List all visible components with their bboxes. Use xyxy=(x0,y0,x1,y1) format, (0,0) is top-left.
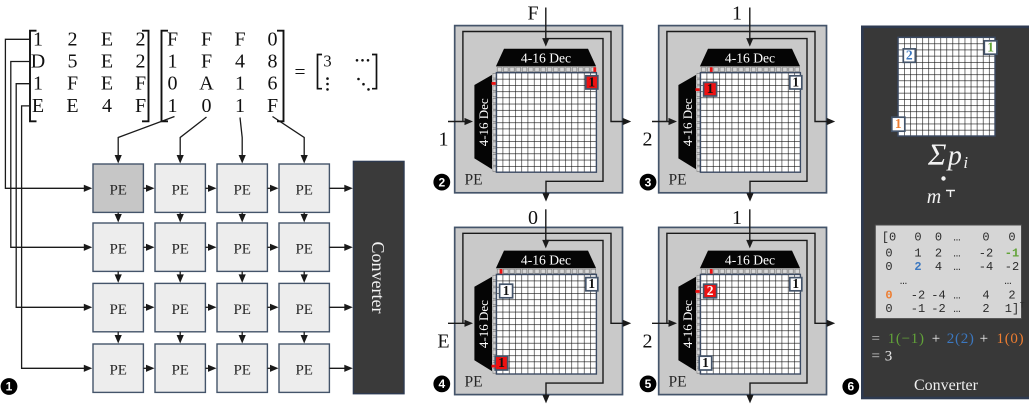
svg-text:F: F xyxy=(135,95,146,117)
svg-text:0: 0 xyxy=(885,260,892,274)
svg-text:Σpi: Σpi xyxy=(927,137,970,173)
svg-text:PE: PE xyxy=(171,242,189,258)
svg-text:PE: PE xyxy=(233,242,251,258)
svg-text:F: F xyxy=(267,95,278,117)
svg-text:E: E xyxy=(101,51,113,73)
svg-text:PE: PE xyxy=(295,363,313,379)
svg-text:4: 4 xyxy=(935,260,942,274)
svg-text:0: 0 xyxy=(885,247,892,261)
svg-text:2: 2 xyxy=(136,51,146,73)
svg-text:=: = xyxy=(872,349,880,365)
svg-text:PE: PE xyxy=(233,183,251,199)
svg-text:1: 1 xyxy=(588,74,595,89)
svg-text:4: 4 xyxy=(102,95,112,117)
svg-text:=: = xyxy=(872,331,880,347)
svg-text:F: F xyxy=(201,28,212,50)
svg-text:D: D xyxy=(31,51,45,73)
svg-text:…: … xyxy=(953,247,960,261)
svg-text:2: 2 xyxy=(982,302,989,316)
svg-text:PE: PE xyxy=(171,363,189,379)
svg-text:A: A xyxy=(199,73,214,95)
svg-text:…: … xyxy=(953,231,960,245)
svg-text:F: F xyxy=(234,28,245,50)
svg-text:Converter: Converter xyxy=(368,242,388,314)
svg-text:1: 1 xyxy=(168,95,178,117)
svg-text:…: … xyxy=(900,274,907,288)
svg-text:3: 3 xyxy=(885,349,893,365)
svg-text:m: m xyxy=(927,186,941,208)
svg-text:2: 2 xyxy=(1008,289,1015,303)
svg-text:-4: -4 xyxy=(979,260,993,274)
svg-text:PE: PE xyxy=(171,302,189,318)
svg-text:0: 0 xyxy=(885,289,892,303)
svg-text:F: F xyxy=(527,3,538,25)
svg-text:PE: PE xyxy=(233,363,251,379)
svg-text:E: E xyxy=(101,73,113,95)
svg-text:2: 2 xyxy=(707,283,714,298)
svg-text:1: 1 xyxy=(792,276,799,291)
svg-text:PE: PE xyxy=(109,183,127,199)
svg-text:2: 2 xyxy=(906,48,913,63)
svg-text:1: 1 xyxy=(732,3,742,25)
svg-text:5: 5 xyxy=(645,377,652,391)
svg-text:PE: PE xyxy=(233,302,251,318)
svg-text:1: 1 xyxy=(732,207,742,229)
svg-text:PE: PE xyxy=(295,302,313,318)
svg-text:…: … xyxy=(953,260,960,274)
svg-text:-2: -2 xyxy=(979,247,993,261)
svg-text:F: F xyxy=(167,28,178,50)
svg-text:PE: PE xyxy=(171,183,189,199)
svg-text:2: 2 xyxy=(935,247,942,261)
svg-text:1: 1 xyxy=(6,380,13,394)
svg-text:-2: -2 xyxy=(911,289,925,303)
svg-text:0: 0 xyxy=(528,207,538,229)
svg-text:PE: PE xyxy=(295,183,313,199)
svg-text:-1: -1 xyxy=(1005,247,1019,261)
svg-text:3: 3 xyxy=(645,175,652,189)
svg-text:1: 1 xyxy=(168,51,178,73)
svg-text:1: 1 xyxy=(503,283,510,298)
svg-text:PE: PE xyxy=(109,302,127,318)
svg-text:PE: PE xyxy=(109,363,127,379)
svg-text:F: F xyxy=(67,73,78,95)
svg-text:+: + xyxy=(980,331,988,347)
svg-text:T: T xyxy=(1020,302,1025,311)
svg-text:4: 4 xyxy=(982,289,989,303)
svg-text:F: F xyxy=(201,51,212,73)
svg-text:8: 8 xyxy=(268,51,278,73)
svg-text:E: E xyxy=(437,330,449,352)
svg-text:-1: -1 xyxy=(911,302,925,316)
svg-text:PE: PE xyxy=(109,242,127,258)
svg-text:=: = xyxy=(295,62,306,83)
svg-text:0: 0 xyxy=(168,73,178,95)
svg-text:Converter: Converter xyxy=(914,377,979,394)
svg-text:1(0): 1(0) xyxy=(997,331,1025,347)
svg-text:2: 2 xyxy=(914,260,921,274)
svg-text:1: 1 xyxy=(498,355,505,370)
svg-text:0: 0 xyxy=(935,231,942,245)
svg-text:4: 4 xyxy=(235,51,245,73)
svg-text:1: 1 xyxy=(895,116,902,131)
svg-text:2: 2 xyxy=(438,175,445,189)
svg-text:[0: [0 xyxy=(882,231,896,245)
svg-text:1: 1 xyxy=(33,73,43,95)
svg-text:0: 0 xyxy=(914,231,921,245)
svg-text:1: 1 xyxy=(707,81,714,96)
svg-text:F: F xyxy=(135,73,146,95)
svg-text:…: … xyxy=(953,289,960,303)
svg-text:PE: PE xyxy=(295,242,313,258)
svg-text:0: 0 xyxy=(982,231,989,245)
svg-text:E: E xyxy=(101,28,113,50)
svg-text:-4: -4 xyxy=(931,289,945,303)
svg-text:6: 6 xyxy=(847,380,854,394)
svg-text:1: 1 xyxy=(792,74,799,89)
svg-text:1]: 1] xyxy=(1005,302,1019,316)
svg-text:1: 1 xyxy=(987,40,994,55)
svg-text:2: 2 xyxy=(643,330,653,352)
svg-text:6: 6 xyxy=(268,73,278,95)
svg-text:0: 0 xyxy=(885,302,892,316)
svg-text:2: 2 xyxy=(68,28,78,50)
svg-text:1: 1 xyxy=(235,73,245,95)
svg-text:E: E xyxy=(66,95,78,117)
svg-text:-2: -2 xyxy=(931,302,945,316)
svg-text:0: 0 xyxy=(1008,231,1015,245)
svg-text:0: 0 xyxy=(202,95,212,117)
svg-text:…: … xyxy=(1004,274,1011,288)
svg-text:1: 1 xyxy=(439,129,449,151)
svg-text:5: 5 xyxy=(68,51,78,73)
svg-text:1: 1 xyxy=(588,276,595,291)
svg-text:-2: -2 xyxy=(1005,260,1019,274)
svg-text:…: … xyxy=(953,302,960,316)
svg-text:3: 3 xyxy=(323,52,331,71)
svg-text:+: + xyxy=(932,331,940,347)
svg-text:E: E xyxy=(32,95,44,117)
svg-text:1(−1): 1(−1) xyxy=(888,331,925,347)
svg-text:1: 1 xyxy=(235,95,245,117)
svg-text:2: 2 xyxy=(643,129,653,151)
svg-text:1: 1 xyxy=(702,355,709,370)
svg-text:2(2): 2(2) xyxy=(947,331,975,347)
svg-text:4: 4 xyxy=(438,377,445,391)
svg-text:1: 1 xyxy=(914,247,921,261)
svg-text:0: 0 xyxy=(268,28,278,50)
